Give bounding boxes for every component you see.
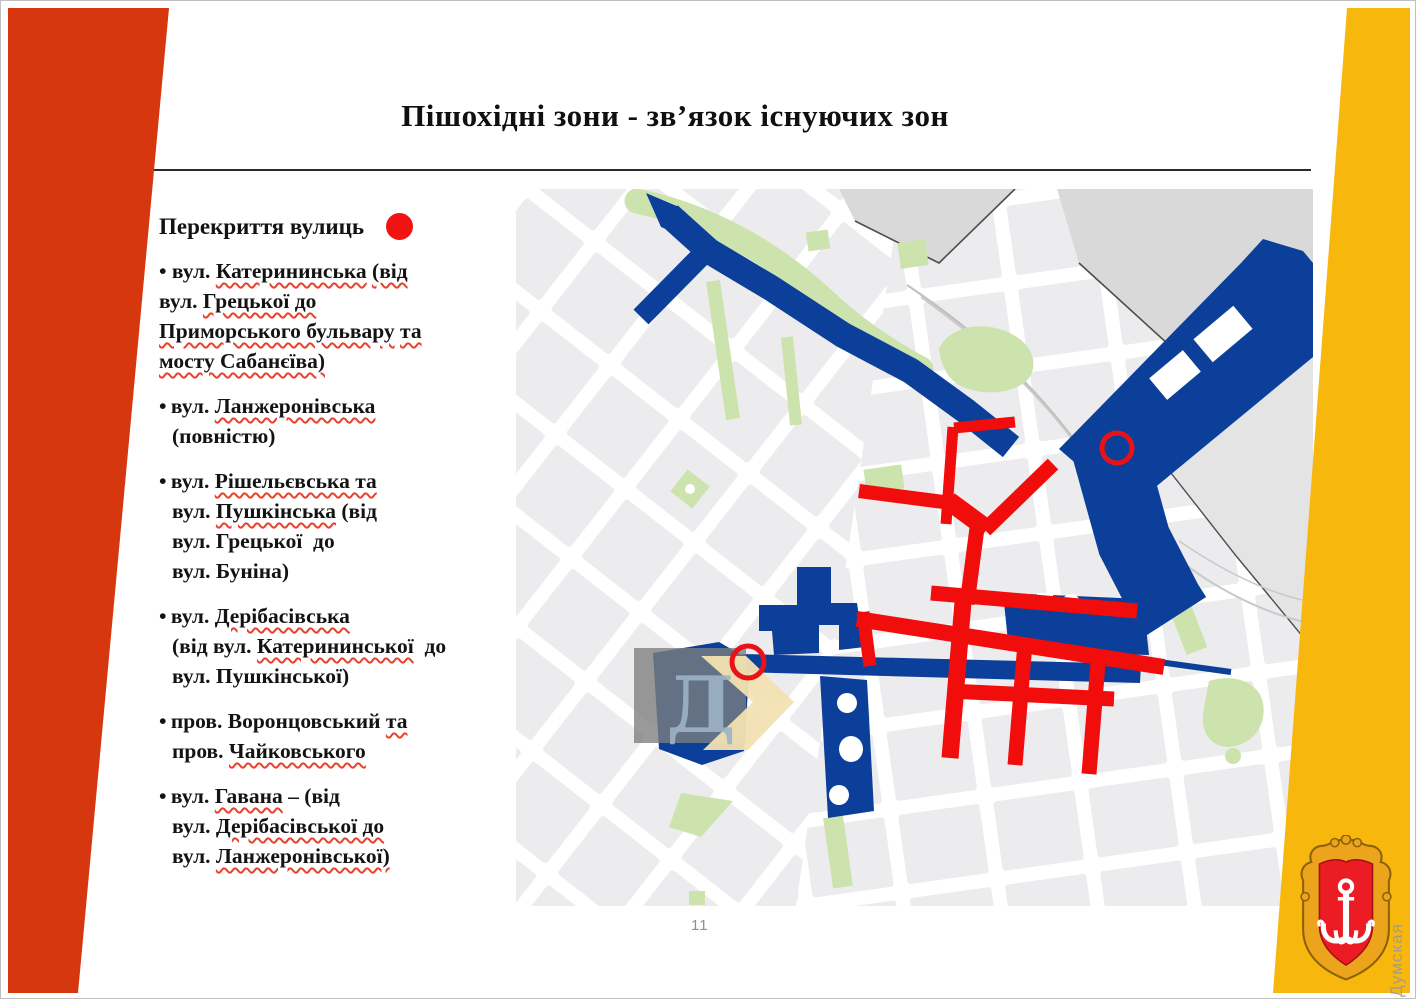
closure-item: • вул. Катерининська (відвул. Грецької д… bbox=[159, 256, 515, 376]
page-title: Пішохідні зони - зв’язок існуючих зон bbox=[1, 98, 1349, 134]
legend-heading-text: Перекриття вулиць bbox=[159, 214, 364, 239]
closure-item-text: Катерининська bbox=[216, 259, 367, 283]
closure-item-text: Дерібасівська bbox=[215, 604, 350, 628]
closure-item-text: вул. Пушкінської) bbox=[172, 664, 349, 688]
closure-item: • вул. Дерібасівська(від вул. Катерининс… bbox=[159, 601, 515, 691]
closure-item-text: Пушкінська bbox=[216, 499, 336, 523]
slide: Д Пішохі bbox=[0, 0, 1416, 999]
closure-item-text: та bbox=[386, 709, 408, 733]
closure-item-text: вул. Буніна) bbox=[172, 559, 289, 583]
closure-item: • вул. Ланжеронівська(повністю) bbox=[159, 391, 515, 451]
legend-heading: Перекриття вулиць bbox=[159, 213, 515, 240]
closure-item-text: вул. bbox=[172, 814, 216, 838]
closure-item-text: • пров. Воронцовський bbox=[159, 709, 386, 733]
street-closure-legend: Перекриття вулиць • вул. Катерининська (… bbox=[159, 213, 515, 886]
closure-item-text: • вул. bbox=[159, 469, 215, 493]
closure-item-text: мосту Сабанєїва) bbox=[159, 349, 325, 373]
site-watermark: Думская bbox=[1387, 829, 1407, 997]
closure-item-text: Приморського бульвару bbox=[159, 319, 395, 343]
closure-item-text: • вул. bbox=[159, 604, 215, 628]
closure-item-text: Дерібасівської до bbox=[216, 814, 384, 838]
closure-item-text: Грецької до bbox=[203, 289, 316, 313]
closure-item-text: вул. bbox=[159, 289, 203, 313]
closure-item-text: Рішельєвська та bbox=[215, 469, 377, 493]
closure-item-text: вул. bbox=[172, 499, 216, 523]
closure-item-text: Катерининської bbox=[257, 634, 414, 658]
closure-item-text: та bbox=[400, 319, 422, 343]
closure-item: • вул. Рішельєвська тавул. Пушкінська (в… bbox=[159, 466, 515, 586]
closure-item-text: (від bbox=[372, 259, 408, 283]
closure-item-text: • вул. bbox=[159, 784, 215, 808]
closure-item-text: (повністю) bbox=[172, 424, 275, 448]
closure-item-text: вул. Грецької до bbox=[172, 529, 335, 553]
closure-item-text: (від bbox=[336, 499, 377, 523]
closure-item-text: до bbox=[414, 634, 446, 658]
closure-item-text: вул. bbox=[172, 844, 216, 868]
closure-item-text: Чайковського bbox=[229, 739, 366, 763]
closure-item-text: пров. bbox=[172, 739, 229, 763]
closure-item-text: (від вул. bbox=[172, 634, 257, 658]
odessa-coat-of-arms bbox=[1297, 835, 1395, 985]
watermark-letter: Д bbox=[666, 660, 735, 751]
closure-item-text: Ланжеронівської) bbox=[216, 844, 390, 868]
street-closure-list: • вул. Катерининська (відвул. Грецької д… bbox=[159, 256, 515, 871]
closure-item-text: Ланжеронівська bbox=[215, 394, 376, 418]
closure-item-text: – (від bbox=[283, 784, 340, 808]
closure-item-text: • вул. bbox=[159, 394, 215, 418]
title-divider bbox=[149, 169, 1311, 171]
closure-item: • пров. Воронцовський тапров. Чайковсько… bbox=[159, 706, 515, 766]
closure-item-text: Гавана bbox=[215, 784, 283, 808]
closure-item-text: • вул. bbox=[159, 259, 216, 283]
closure-item: • вул. Гавана – (відвул. Дерібасівської … bbox=[159, 781, 515, 871]
page-number: 11 bbox=[691, 917, 709, 934]
closure-legend-dot-icon bbox=[386, 213, 413, 240]
